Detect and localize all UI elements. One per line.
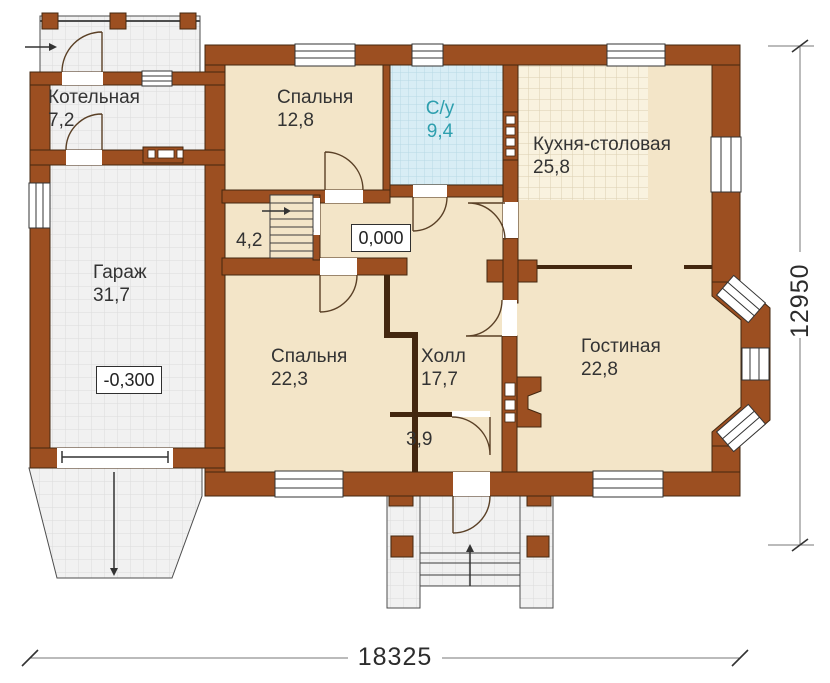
elevation-mark-main: 0,000 bbox=[351, 224, 411, 252]
porch-pillar bbox=[527, 536, 549, 557]
room-label-garage: Гараж 31,7 bbox=[93, 261, 147, 307]
dimension-depth: 12950 bbox=[786, 263, 815, 338]
elevation-mark-garage: -0,300 bbox=[96, 366, 162, 394]
window bbox=[275, 471, 343, 497]
stairs bbox=[262, 195, 313, 258]
garage-driveway bbox=[29, 468, 202, 578]
window bbox=[142, 71, 172, 86]
window bbox=[711, 137, 741, 192]
room-label-tambour: 3,9 bbox=[406, 428, 432, 451]
window bbox=[593, 471, 663, 497]
porch-post bbox=[110, 13, 126, 29]
room-label-bedroom1: Спальня 12,8 bbox=[277, 86, 353, 132]
window bbox=[607, 44, 665, 66]
room-label-corridor: 4,2 bbox=[236, 229, 262, 252]
top-porch bbox=[40, 13, 200, 72]
porch-post bbox=[42, 13, 58, 29]
room-label-kitchen: Кухня-столовая 25,8 bbox=[533, 133, 671, 179]
floor-plan: Котельная 7,2 Спальня 12,8 С/у 9,4 Кухня… bbox=[0, 0, 830, 683]
room-label-living: Гостиная 22,8 bbox=[581, 335, 661, 381]
bay-window-middle bbox=[742, 348, 769, 380]
room-label-hall: Холл 17,7 bbox=[421, 345, 466, 391]
room-label-bathroom: С/у 9,4 bbox=[418, 97, 462, 143]
porch-post bbox=[180, 13, 196, 29]
room-label-bedroom2: Спальня 22,3 bbox=[271, 345, 347, 391]
window bbox=[295, 44, 355, 66]
window bbox=[412, 44, 443, 66]
room-label-boiler: Котельная 7,2 bbox=[48, 86, 140, 132]
dimension-width: 18325 bbox=[352, 643, 438, 672]
porch-pillar bbox=[391, 536, 413, 557]
window bbox=[29, 183, 50, 228]
